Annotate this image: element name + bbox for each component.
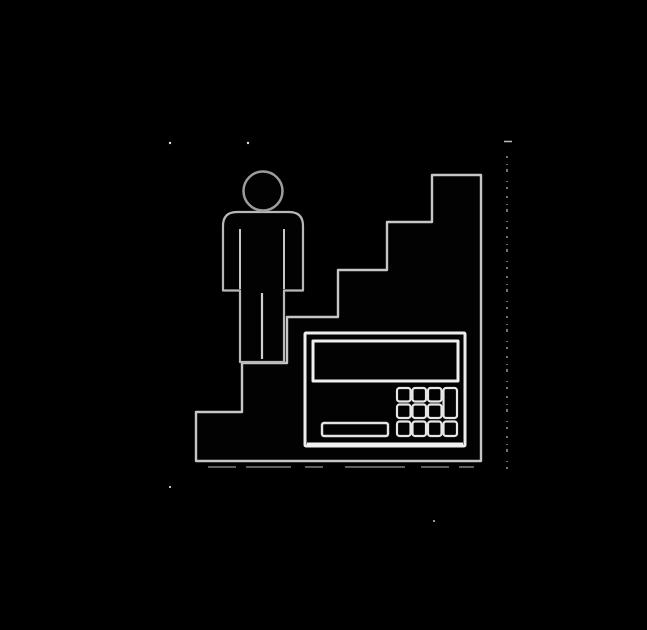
scan-speck-1 xyxy=(169,142,171,144)
scan-speck-3 xyxy=(169,486,171,488)
scan-speck-4 xyxy=(433,520,435,522)
register-display xyxy=(313,341,458,381)
register-key-r2c3 xyxy=(428,405,442,419)
register-key-r3c3 xyxy=(428,422,442,437)
register-key-r1c2 xyxy=(413,388,427,402)
register-key-r2c2 xyxy=(413,405,427,419)
register-key-r2c1 xyxy=(397,405,411,419)
person-head xyxy=(244,172,283,211)
register-key-tall xyxy=(444,388,458,418)
register-key-r3c4 xyxy=(444,422,458,437)
pictogram-stage xyxy=(0,0,647,630)
background xyxy=(0,0,647,630)
register-key-r3c2 xyxy=(413,422,427,437)
register-key-r1c1 xyxy=(397,388,411,402)
register-key-r1c3 xyxy=(428,388,442,402)
register-drawer-bar xyxy=(322,423,388,436)
register-key-r3c1 xyxy=(397,422,411,437)
scan-speck-2 xyxy=(247,142,249,144)
pictogram-canvas xyxy=(0,0,647,630)
